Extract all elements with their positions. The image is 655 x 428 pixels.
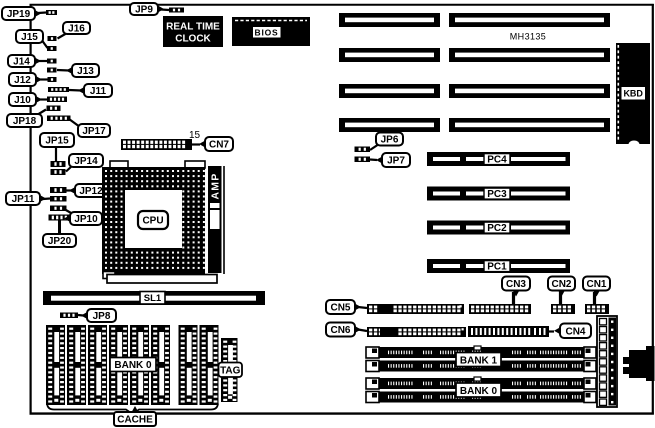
svg-text:PC4: PC4 xyxy=(487,154,507,165)
svg-text:JP14: JP14 xyxy=(74,156,98,167)
svg-text:JP9: JP9 xyxy=(135,5,153,16)
svg-text:SL1: SL1 xyxy=(144,293,162,304)
svg-text:J16: J16 xyxy=(68,24,85,35)
svg-text:REAL TIME: REAL TIME xyxy=(166,22,220,33)
svg-text:CN5: CN5 xyxy=(330,303,350,314)
svg-text:PC3: PC3 xyxy=(487,189,507,200)
svg-text:JP8: JP8 xyxy=(93,311,111,322)
svg-text:J13: J13 xyxy=(77,66,94,77)
svg-text:CN3: CN3 xyxy=(506,279,526,290)
svg-text:JP12: JP12 xyxy=(79,186,103,197)
svg-text:JP18: JP18 xyxy=(13,116,37,127)
svg-text:CN6: CN6 xyxy=(330,325,350,336)
svg-text:JP6: JP6 xyxy=(381,135,399,146)
svg-text:J11: J11 xyxy=(90,86,107,97)
svg-text:JP10: JP10 xyxy=(74,214,98,225)
svg-text:J12: J12 xyxy=(14,75,31,86)
svg-text:CN1: CN1 xyxy=(586,279,606,290)
svg-text:AMP: AMP xyxy=(210,173,222,200)
svg-text:BIOS: BIOS xyxy=(255,28,279,38)
svg-text:15: 15 xyxy=(189,130,201,141)
svg-text:KBD: KBD xyxy=(623,89,643,99)
svg-text:CPU: CPU xyxy=(142,216,163,227)
svg-text:JP19: JP19 xyxy=(7,9,31,20)
svg-text:JP20: JP20 xyxy=(48,236,72,247)
svg-text:J14: J14 xyxy=(13,57,30,68)
svg-text:JP11: JP11 xyxy=(12,194,35,205)
svg-text:CN4: CN4 xyxy=(565,326,585,337)
svg-text:BANK 0: BANK 0 xyxy=(114,360,152,371)
svg-text:PC1: PC1 xyxy=(487,261,507,272)
svg-text:CACHE: CACHE xyxy=(117,415,153,426)
svg-text:CLOCK: CLOCK xyxy=(175,34,211,45)
svg-text:TAG: TAG xyxy=(220,365,241,376)
svg-text:BANK 0: BANK 0 xyxy=(460,386,498,397)
svg-text:CN2: CN2 xyxy=(551,279,571,290)
svg-text:PC2: PC2 xyxy=(487,223,507,234)
svg-text:JP17: JP17 xyxy=(82,126,106,137)
svg-text:JP7: JP7 xyxy=(387,156,405,167)
svg-text:J15: J15 xyxy=(21,32,38,43)
svg-text:CN7: CN7 xyxy=(209,140,229,151)
svg-text:JP15: JP15 xyxy=(45,136,69,147)
svg-text:MH3135: MH3135 xyxy=(510,32,546,42)
svg-text:J10: J10 xyxy=(14,95,31,106)
svg-text:BANK 1: BANK 1 xyxy=(460,355,498,366)
